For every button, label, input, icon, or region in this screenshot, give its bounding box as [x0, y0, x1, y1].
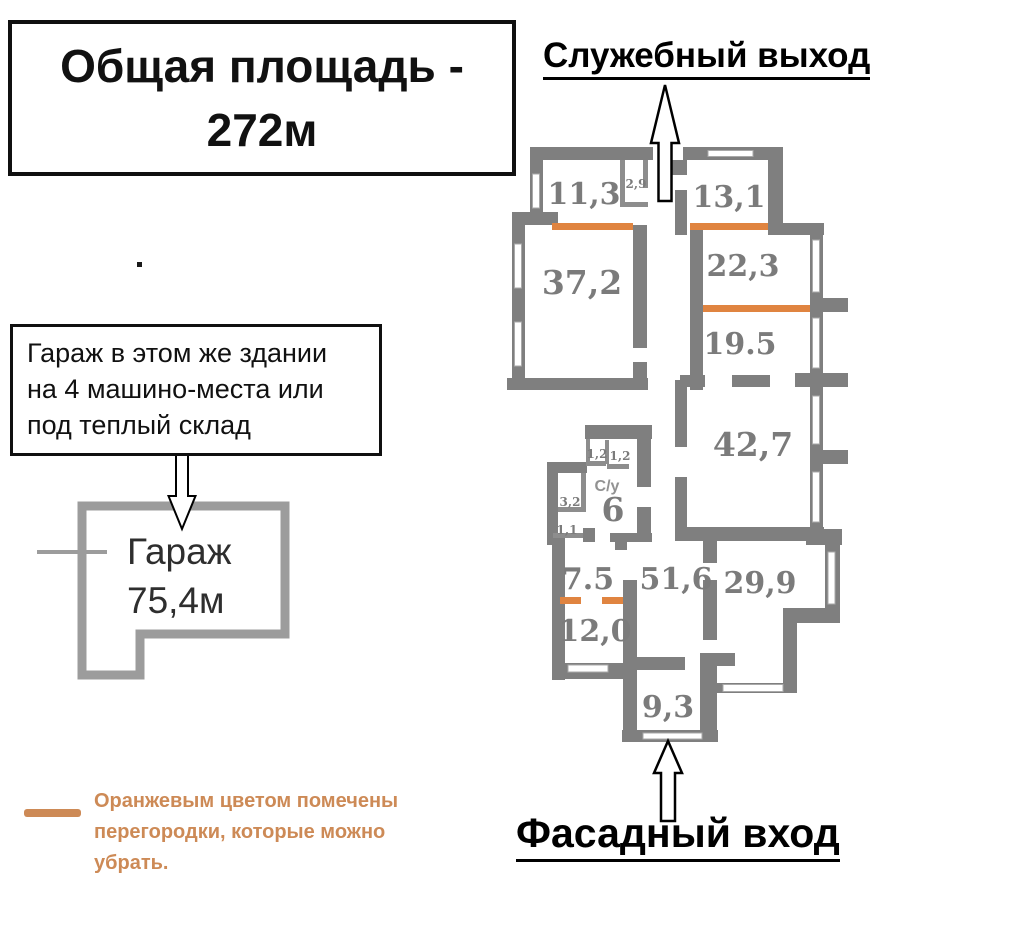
service-exit-heading: Служебный выход: [543, 36, 870, 80]
room-label-12-0: 12,0: [558, 614, 631, 649]
legend-orange-swatch: [24, 809, 81, 817]
room-label-29-9: 29,9: [723, 566, 796, 601]
garage-note-box: Гараж в этом же здании на 4 машино-места…: [10, 324, 382, 456]
stray-dot: [137, 262, 142, 267]
room-label-11-3: 11,3: [547, 177, 620, 212]
room-label-1-1: 1,1: [557, 523, 578, 537]
facade-entrance-arrow-icon: [654, 741, 682, 821]
legend-line2: перегородки, которые можно: [94, 817, 434, 848]
legend-line1: Оранжевым цветом помечены: [94, 786, 434, 817]
room-label-22-3: 22,3: [706, 249, 779, 284]
room-label-37-2: 37,2: [542, 263, 622, 302]
total-area-line2: 272м: [207, 98, 318, 162]
garage-area-label: 75,4м: [127, 580, 224, 621]
garage-name-label: Гараж: [127, 531, 232, 572]
dashed-wall-segment: [732, 375, 770, 387]
room-label-1-2a: 1,2: [587, 447, 608, 461]
room-label-9-3: 9,3: [642, 690, 694, 725]
garage-plan: Гараж 75,4м: [37, 506, 285, 675]
room-labels: 11,3 2,9 13,1 37,2 22,3 19.5 42,7 1,2 1,…: [542, 177, 797, 725]
service-exit-arrow-icon: [651, 85, 679, 201]
room-label-19-5: 19.5: [703, 327, 776, 362]
room-label-2-9: 2,9: [626, 177, 647, 191]
garage-note-line1: Гараж в этом же здании: [27, 335, 379, 371]
room-label-42-7: 42,7: [713, 425, 793, 464]
room-label-1-2b: 1,2: [610, 449, 631, 463]
room-label-7-5: 7.5: [562, 562, 614, 597]
legend-text: Оранжевым цветом помечены перегородки, к…: [94, 786, 434, 879]
room-label-6: 6: [602, 490, 625, 529]
total-area-line1: Общая площадь -: [60, 34, 464, 98]
garage-note-arrow-icon: [169, 454, 196, 529]
room-label-3-2: 3,2: [560, 495, 581, 509]
floor-plan-walls: [507, 147, 848, 742]
legend-line3: убрать.: [94, 848, 434, 879]
total-area-box: Общая площадь - 272м: [8, 20, 516, 176]
room-label-51-6: 51,6: [639, 562, 712, 597]
facade-entrance-heading: Фасадный вход: [516, 810, 840, 862]
room-label-13-1: 13,1: [692, 180, 765, 215]
garage-note-line2: на 4 машино-места или: [27, 371, 379, 407]
garage-note-line3: под теплый склад: [27, 407, 379, 443]
